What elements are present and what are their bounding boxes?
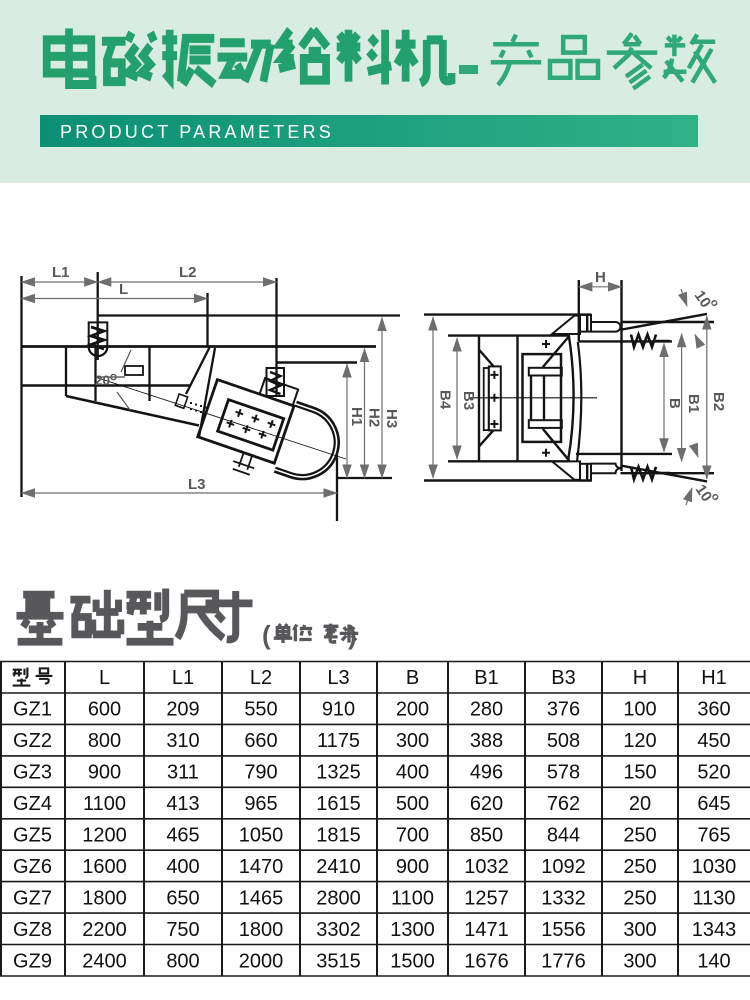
svg-text:L1: L1: [172, 667, 194, 689]
svg-text:1325: 1325: [316, 762, 361, 784]
svg-text:800: 800: [88, 730, 121, 752]
svg-text:B3: B3: [460, 391, 477, 410]
svg-text:1030: 1030: [692, 856, 737, 878]
svg-text:850: 850: [470, 825, 503, 847]
svg-text:1100: 1100: [391, 887, 434, 909]
svg-text:300: 300: [623, 919, 656, 941]
svg-text:120: 120: [623, 730, 656, 752]
svg-text:844: 844: [547, 825, 580, 847]
svg-text:1615: 1615: [316, 793, 361, 815]
svg-text:400: 400: [396, 762, 429, 784]
svg-text:750: 750: [166, 919, 199, 941]
svg-text:450: 450: [697, 730, 730, 752]
svg-text:3515: 3515: [316, 950, 361, 972]
svg-text:L3: L3: [327, 667, 349, 689]
svg-text:20: 20: [95, 373, 110, 388]
svg-text:496: 496: [470, 762, 503, 784]
svg-text:B1: B1: [474, 667, 498, 689]
svg-text:H1: H1: [348, 407, 365, 426]
svg-text:660: 660: [244, 730, 277, 752]
svg-text:1556: 1556: [541, 919, 586, 941]
svg-text:1257: 1257: [464, 887, 509, 909]
svg-text:400: 400: [166, 856, 199, 878]
svg-text:765: 765: [697, 825, 730, 847]
svg-text:H1: H1: [701, 667, 727, 689]
svg-text:B: B: [666, 398, 683, 409]
svg-text:20: 20: [629, 793, 651, 815]
svg-text:1300: 1300: [390, 919, 435, 941]
svg-text:700: 700: [396, 825, 429, 847]
svg-text:645: 645: [697, 793, 730, 815]
svg-text:1600: 1600: [82, 856, 127, 878]
svg-text:H3: H3: [383, 409, 400, 428]
svg-text:1500: 1500: [390, 950, 435, 972]
svg-text:762: 762: [547, 793, 580, 815]
svg-text:200: 200: [396, 699, 429, 721]
svg-text:H2: H2: [366, 408, 383, 427]
svg-text:910: 910: [322, 699, 355, 721]
svg-text:965: 965: [244, 793, 277, 815]
svg-text:650: 650: [166, 887, 199, 909]
svg-text:B: B: [406, 667, 419, 689]
svg-text:508: 508: [547, 730, 580, 752]
svg-text:GZ4: GZ4: [13, 793, 52, 815]
svg-text:413: 413: [166, 793, 199, 815]
svg-text:1465: 1465: [239, 887, 284, 909]
svg-text:310: 310: [166, 730, 199, 752]
svg-text:PRODUCT PARAMETERS: PRODUCT PARAMETERS: [60, 122, 334, 142]
svg-text:465: 465: [166, 825, 199, 847]
svg-text:L: L: [99, 667, 110, 689]
svg-text:250: 250: [623, 856, 656, 878]
svg-text:250: 250: [623, 825, 656, 847]
svg-text:800: 800: [166, 950, 199, 972]
svg-text:B1: B1: [685, 394, 702, 413]
svg-text:GZ1: GZ1: [13, 699, 52, 721]
svg-text:1343: 1343: [692, 919, 737, 941]
svg-text:1332: 1332: [541, 887, 586, 909]
svg-text:1175: 1175: [317, 730, 360, 752]
svg-text:550: 550: [244, 699, 277, 721]
svg-text:250: 250: [623, 887, 656, 909]
svg-text:300: 300: [396, 730, 429, 752]
svg-text:1050: 1050: [239, 825, 284, 847]
svg-text:2410: 2410: [316, 856, 361, 878]
svg-text:(: (: [262, 620, 271, 650]
svg-text:H: H: [595, 269, 606, 286]
svg-text:1776: 1776: [541, 950, 586, 972]
svg-text:1470: 1470: [239, 856, 284, 878]
svg-text:2000: 2000: [239, 950, 284, 972]
svg-text:2400: 2400: [82, 950, 127, 972]
svg-text:150: 150: [623, 762, 656, 784]
svg-text:GZ5: GZ5: [13, 825, 52, 847]
svg-text::: :: [306, 624, 313, 646]
svg-text:L1: L1: [52, 264, 70, 281]
svg-text:L: L: [119, 281, 128, 298]
svg-text:790: 790: [244, 762, 277, 784]
svg-text:1676: 1676: [464, 950, 509, 972]
svg-text:H: H: [633, 667, 647, 689]
svg-text:2200: 2200: [82, 919, 127, 941]
svg-text:L2: L2: [179, 264, 197, 281]
svg-text:600: 600: [88, 699, 121, 721]
svg-text:B4: B4: [437, 390, 454, 410]
svg-text:388: 388: [470, 730, 503, 752]
svg-text:900: 900: [396, 856, 429, 878]
svg-text:B3: B3: [551, 667, 575, 689]
svg-text:1471: 1471: [464, 919, 509, 941]
svg-text:3302: 3302: [316, 919, 361, 941]
svg-text:L3: L3: [188, 476, 206, 493]
svg-text:578: 578: [547, 762, 580, 784]
svg-text:): ): [348, 620, 357, 650]
svg-text:GZ2: GZ2: [13, 730, 52, 752]
svg-text:L2: L2: [250, 667, 272, 689]
svg-text:620: 620: [470, 793, 503, 815]
svg-text:311: 311: [167, 762, 199, 784]
svg-text:GZ6: GZ6: [13, 856, 52, 878]
svg-text:1800: 1800: [82, 887, 127, 909]
svg-text:376: 376: [547, 699, 580, 721]
svg-text:GZ9: GZ9: [13, 950, 52, 972]
svg-text:GZ7: GZ7: [13, 887, 52, 909]
svg-text:GZ3: GZ3: [13, 762, 52, 784]
svg-text:1130: 1130: [692, 887, 735, 909]
svg-text:GZ8: GZ8: [13, 919, 52, 941]
svg-text:140: 140: [697, 950, 730, 972]
svg-text:1032: 1032: [464, 856, 509, 878]
svg-text:2800: 2800: [316, 887, 361, 909]
svg-text:1815: 1815: [316, 825, 361, 847]
svg-text:300: 300: [623, 950, 656, 972]
svg-text:1100: 1100: [83, 793, 126, 815]
svg-text:520: 520: [697, 762, 730, 784]
svg-text:360: 360: [697, 699, 730, 721]
svg-text:1092: 1092: [541, 856, 586, 878]
svg-text:1200: 1200: [82, 825, 127, 847]
svg-text:B2: B2: [710, 392, 727, 411]
svg-text:1800: 1800: [239, 919, 284, 941]
svg-text:500: 500: [396, 793, 429, 815]
svg-text:209: 209: [166, 699, 199, 721]
svg-text:900: 900: [88, 762, 121, 784]
svg-text:100: 100: [623, 699, 656, 721]
svg-text:280: 280: [470, 699, 503, 721]
